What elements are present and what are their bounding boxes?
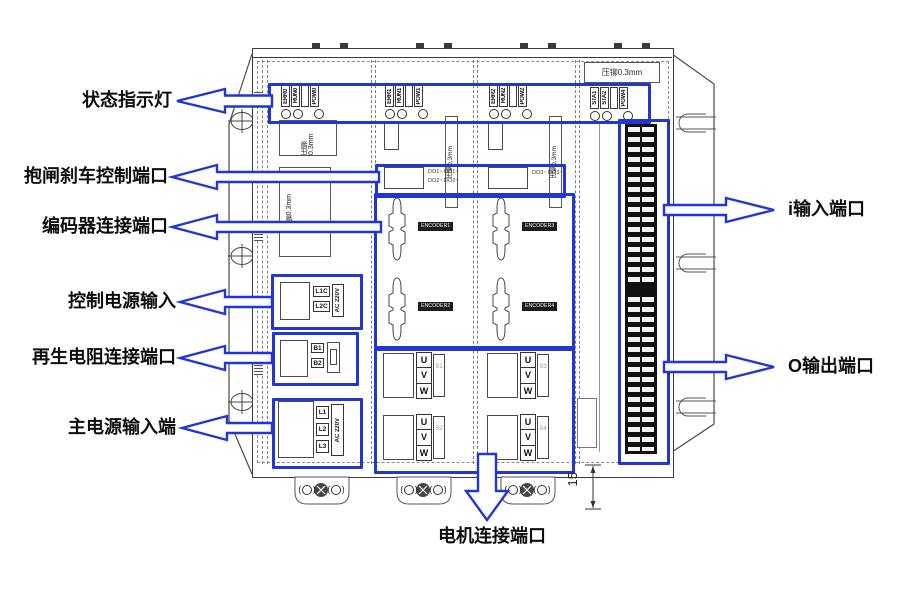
- highlight-status-leds: [268, 83, 651, 124]
- callout-input-port: i输入端口: [788, 200, 865, 220]
- regen-arrow-icon: [179, 344, 274, 372]
- panel-separator: [262, 60, 263, 464]
- note-box: 压铆 0.3mm: [279, 120, 337, 156]
- motor-arrow-icon: [464, 452, 510, 522]
- output-port-arrow-icon: [662, 353, 776, 381]
- highlight-encoder-ports: [374, 193, 575, 349]
- highlight-control-power: [271, 274, 363, 330]
- small-port: [384, 122, 399, 150]
- highlight-main-power: [272, 398, 363, 469]
- encoder-arrow-icon: [171, 213, 383, 241]
- callout-encoder: 编码器连接端口: [10, 217, 168, 237]
- callout-motor-port: 电机连接端口: [417, 527, 567, 547]
- brake-arrow-icon: [171, 163, 381, 191]
- note-box: 压铆0.3mm: [584, 62, 660, 83]
- callout-regen: 再生电阻连接端口: [8, 348, 176, 368]
- panel4-inner-edge: [599, 124, 600, 452]
- callout-output-port: O输出端口: [788, 357, 874, 377]
- flange-clip-icon: [674, 250, 718, 276]
- dimension-label: 15: [566, 472, 579, 491]
- callout-brake: 抱闸刹车控制端口: [10, 167, 168, 187]
- input-port-arrow-icon: [662, 196, 776, 224]
- mounting-foot: [396, 477, 452, 507]
- highlight-regen: [272, 332, 359, 386]
- top-face-line: [252, 57, 672, 58]
- mounting-foot: [294, 477, 350, 507]
- highlight-io-strip: [618, 119, 670, 465]
- callout-control-power: 控制电源输入: [20, 292, 176, 312]
- main-power-arrow-icon: [181, 414, 274, 442]
- callout-main-power: 主电源输入端: [20, 418, 176, 438]
- callout-status: 状态指示灯: [20, 91, 172, 111]
- small-port: [488, 122, 503, 150]
- panel4-lower-box: [577, 398, 597, 448]
- rivet-note: 压铆0.3mm: [602, 67, 642, 78]
- flange-clip-icon: [674, 110, 718, 136]
- status-arrow-icon: [176, 87, 274, 115]
- control-power-arrow-icon: [179, 288, 274, 316]
- flange-clip-icon: [674, 394, 718, 420]
- rivet-note: 压铆 0.3mm: [301, 121, 315, 155]
- servo-drive-diagram: ERR0 RUN0 POW0 压铆 0.3mm 压铆0.3mm L1C L2C …: [0, 0, 900, 608]
- dimension-line: [585, 463, 601, 511]
